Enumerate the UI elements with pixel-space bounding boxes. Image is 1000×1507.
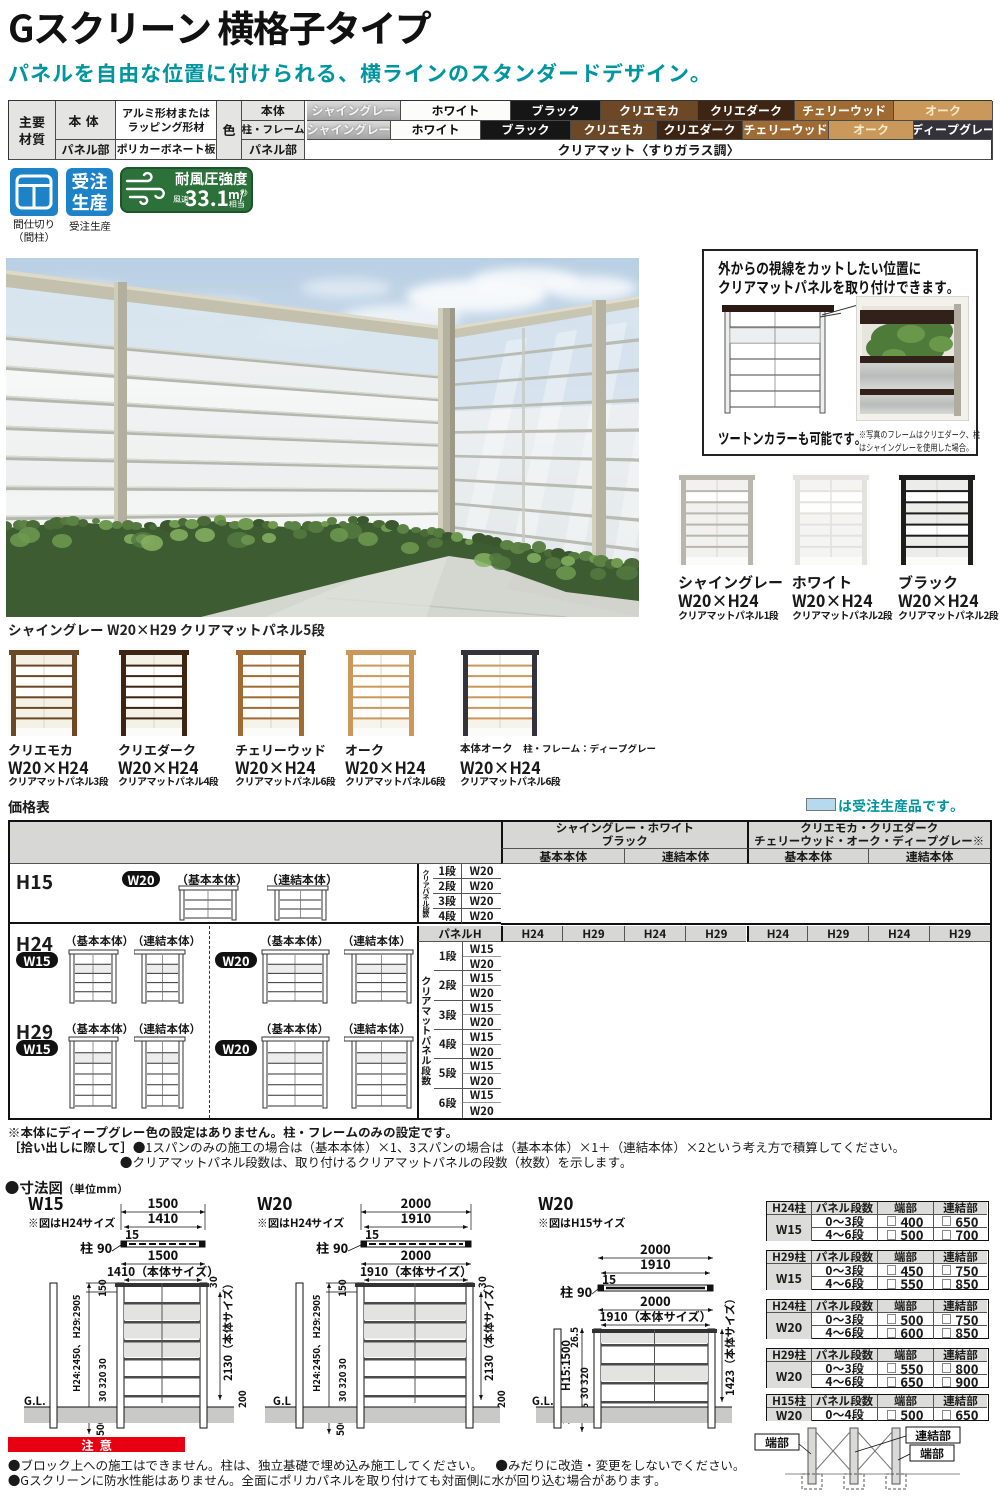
svg-text:15: 15: [365, 1226, 379, 1243]
svg-text:2130（本体サイズ）: 2130（本体サイズ）: [220, 1278, 236, 1381]
svg-text:1910: 1910: [401, 1208, 432, 1227]
svg-text:柱: 柱: [560, 1282, 573, 1301]
svg-text:1423（本体サイズ）: 1423（本体サイズ）: [722, 1293, 738, 1396]
svg-text:150: 150: [94, 1279, 109, 1297]
svg-text:15: 15: [125, 1226, 139, 1243]
svg-text:30 320 30: 30 320 30: [335, 1358, 349, 1402]
svg-text:H24:2450、H29:2905: H24:2450、H29:2905: [309, 1294, 323, 1392]
svg-text:1500: 1500: [148, 1245, 179, 1264]
svg-text:柱: 柱: [80, 1238, 93, 1257]
svg-text:90: 90: [97, 1238, 113, 1257]
svg-text:連結部: 連結部: [915, 1427, 952, 1444]
svg-text:150: 150: [334, 1279, 349, 1297]
svg-text:200: 200: [493, 1390, 508, 1408]
svg-text:W20: W20: [538, 1196, 574, 1215]
svg-text:2130（本体サイズ）: 2130（本体サイズ）: [481, 1278, 497, 1381]
svg-text:1910: 1910: [640, 1254, 671, 1273]
svg-text:W15: W15: [28, 1196, 64, 1215]
svg-text:1910（本体サイズ）: 1910（本体サイズ）: [599, 1308, 711, 1325]
svg-text:端部: 端部: [920, 1445, 945, 1462]
svg-text:相当: 相当: [229, 199, 245, 210]
svg-text:1910（本体サイズ）: 1910（本体サイズ）: [360, 1263, 472, 1280]
svg-text:2000: 2000: [401, 1245, 432, 1264]
svg-text:※図はH24サイズ: ※図はH24サイズ: [28, 1215, 115, 1231]
svg-text:秒: 秒: [239, 188, 248, 199]
svg-text:端部: 端部: [765, 1434, 790, 1451]
svg-text:33.1: 33.1: [185, 183, 229, 211]
svg-text:※図はH15サイズ: ※図はH15サイズ: [538, 1215, 625, 1231]
svg-text:1410: 1410: [148, 1208, 179, 1227]
svg-text:1410（本体サイズ）: 1410（本体サイズ）: [107, 1263, 219, 1280]
svg-text:柱: 柱: [316, 1238, 329, 1257]
svg-text:W20: W20: [257, 1196, 293, 1215]
svg-text:90: 90: [333, 1238, 349, 1257]
svg-text:30 320: 30 320: [576, 1367, 591, 1399]
svg-text:H24:2450、H29:2905: H24:2450、H29:2905: [69, 1294, 83, 1392]
svg-text:30 320 30: 30 320 30: [95, 1358, 109, 1402]
svg-text:90: 90: [577, 1282, 593, 1301]
svg-text:※図はH24サイズ: ※図はH24サイズ: [257, 1215, 344, 1231]
